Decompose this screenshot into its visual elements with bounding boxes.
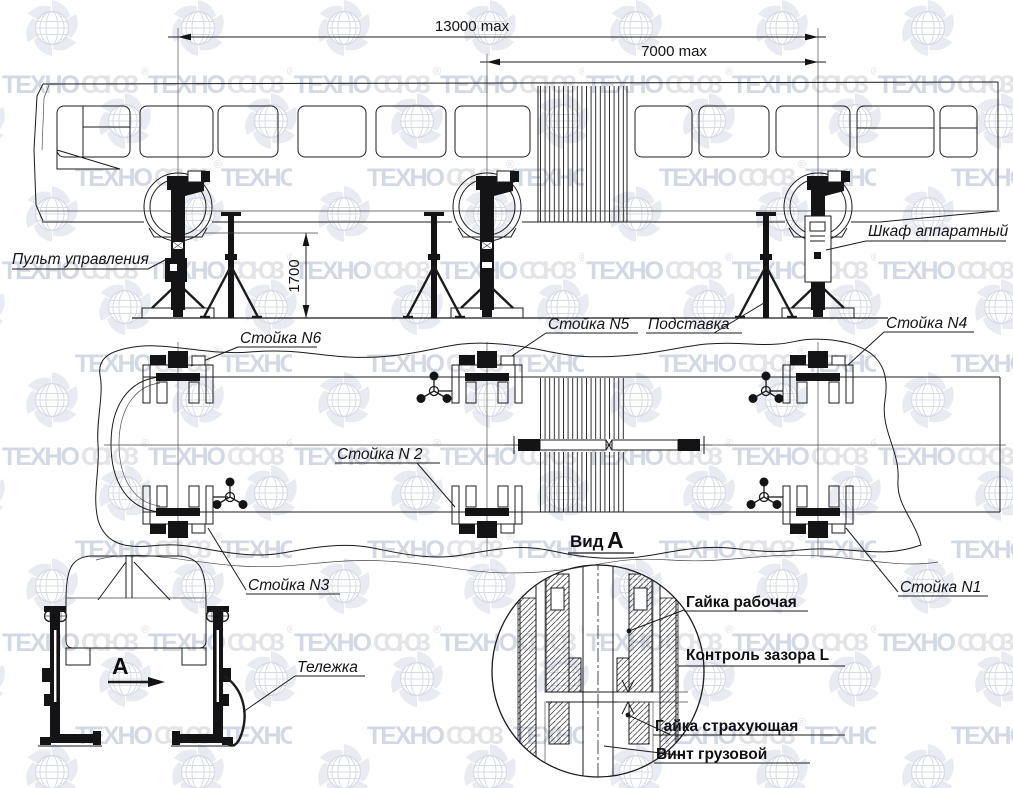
svg-text:Стойка N3: Стойка N3 — [248, 577, 330, 594]
equipment-cabinet-box — [805, 216, 831, 282]
svg-text:Стойка N 2: Стойка N 2 — [337, 446, 423, 463]
svg-text:Стойка N5: Стойка N5 — [548, 316, 630, 333]
svg-text:Пульт управления: Пульт управления — [12, 251, 149, 268]
svg-text:Шкаф аппаратный: Шкаф аппаратный — [868, 223, 1009, 240]
svg-text:1700: 1700 — [286, 259, 303, 292]
svg-text:13000 max: 13000 max — [435, 18, 510, 35]
svg-text:Вид: Вид — [570, 532, 604, 551]
lift-scheme-drawing: ТЕХНО СОЮЗ ® ТЕХНО СОЮЗ ® ТЕХНО СОЮЗ ® Т… — [0, 0, 1013, 788]
bellows-side — [538, 86, 627, 222]
svg-text:7000 max: 7000 max — [641, 43, 707, 60]
label-control-panel: Пульт управления — [12, 251, 167, 269]
svg-text:А: А — [607, 527, 624, 553]
label-gap-control: Контроль зазора L — [686, 647, 829, 664]
svg-text:Тележка: Тележка — [297, 659, 358, 676]
svg-text:Стойка N4: Стойка N4 — [886, 315, 968, 332]
svg-text:Гайка страхующая: Гайка страхующая — [655, 718, 798, 735]
svg-text:Стойка N6: Стойка N6 — [240, 330, 322, 347]
svg-text:Стойка N1: Стойка N1 — [900, 579, 981, 596]
watermark-layer — [0, 0, 1013, 788]
svg-text:А: А — [112, 653, 129, 679]
svg-text:Контроль зазора L: Контроль зазора L — [686, 647, 829, 664]
svg-text:Гайка рабочая: Гайка рабочая — [686, 594, 797, 611]
control-panel-box — [165, 258, 187, 282]
